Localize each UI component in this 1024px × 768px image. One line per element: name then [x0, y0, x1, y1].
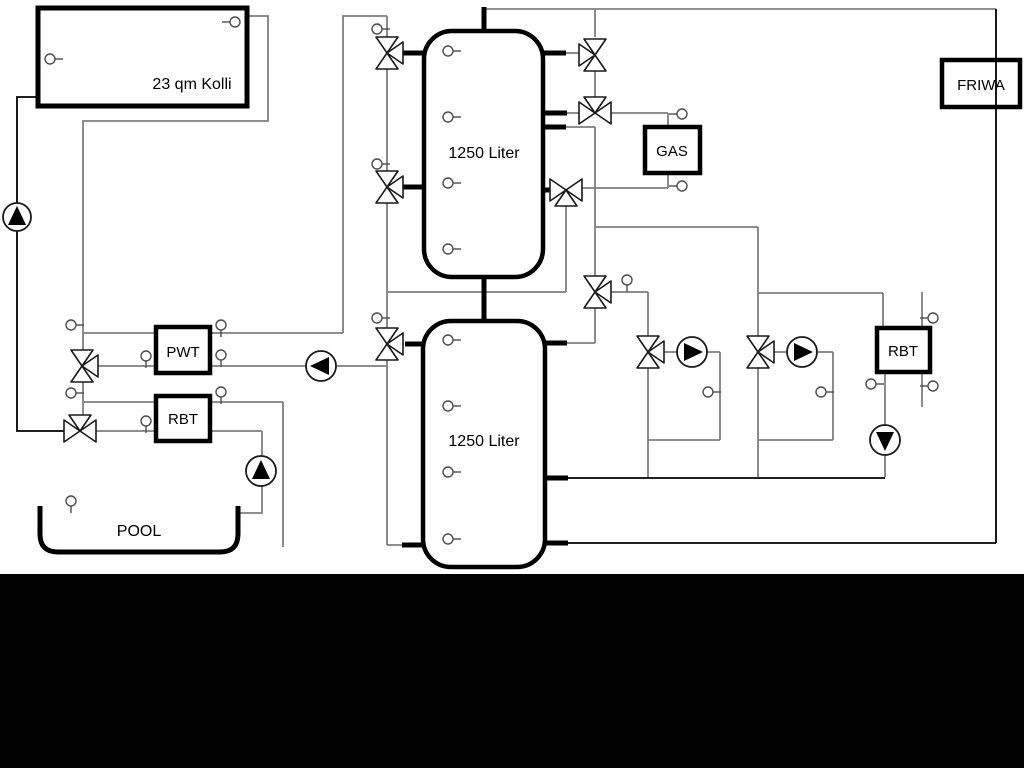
sensor-icon	[669, 181, 687, 191]
pool-pump-icon	[246, 456, 276, 486]
valve-tank1-left-top-icon	[376, 37, 403, 69]
sensor-icon	[669, 109, 687, 119]
sensor-icon	[66, 388, 84, 398]
valve-circuit1-mixer-icon	[637, 336, 664, 368]
valve-circuit2-mixer-icon	[747, 336, 774, 368]
sensor-icon	[816, 387, 834, 397]
valve-tank1-right-top-icon	[579, 39, 606, 71]
valve-solar-3way-icon	[71, 350, 98, 382]
valve-tank2-left-icon	[376, 328, 403, 360]
pipe-rbt-bottom-pool	[96, 431, 262, 513]
valve-gas-return-3way-icon	[550, 179, 582, 206]
valve-distribution-3way-icon	[584, 276, 611, 308]
pipe-loop2	[758, 352, 833, 477]
solar-pump-icon	[3, 203, 31, 231]
rbt-right-pump-icon	[870, 425, 900, 455]
pipe-rbt2-feed	[758, 293, 883, 328]
gas-label: GAS	[656, 143, 688, 160]
circuit1-pump-icon	[677, 337, 707, 367]
valve-gas-flow-3way-icon	[579, 97, 611, 124]
sensor-icon	[703, 387, 721, 397]
valve-tank1-left-bottom-icon	[376, 171, 403, 203]
sensor-icon	[66, 320, 84, 330]
tank-lower-label: 1250 Liter	[448, 433, 520, 450]
rbt-left-label: RBT	[168, 411, 198, 428]
circuit2-pump-icon	[787, 337, 817, 367]
valve-pool-3way-icon	[64, 415, 96, 442]
pipe-collector-flow	[17, 97, 64, 431]
schematic-canvas: 23 qm Kolli 1250 Liter 1250 Liter PWT RB…	[0, 0, 1024, 768]
sensor-icon	[216, 320, 226, 337]
sensor-icon	[216, 350, 226, 367]
sensor-icon	[622, 275, 632, 292]
pwt-pump-icon	[306, 351, 336, 381]
sensor-icon	[866, 379, 884, 389]
friwa-label: FRIWA	[957, 77, 1005, 94]
pipe-circuit2-riser	[595, 227, 758, 336]
pwt-label: PWT	[166, 344, 199, 361]
rbt-right-label: RBT	[888, 343, 918, 360]
pipe-vd-to-tank	[567, 308, 595, 343]
pipe-loop1	[648, 352, 720, 477]
tank-upper-label: 1250 Liter	[448, 145, 520, 162]
letterbox-bar	[0, 574, 1024, 768]
collector-label: 23 qm Kolli	[152, 76, 231, 93]
pool-label: POOL	[117, 523, 162, 540]
pipe-tank-left-column	[387, 69, 402, 545]
pipe-circuit1-riser	[611, 292, 648, 336]
